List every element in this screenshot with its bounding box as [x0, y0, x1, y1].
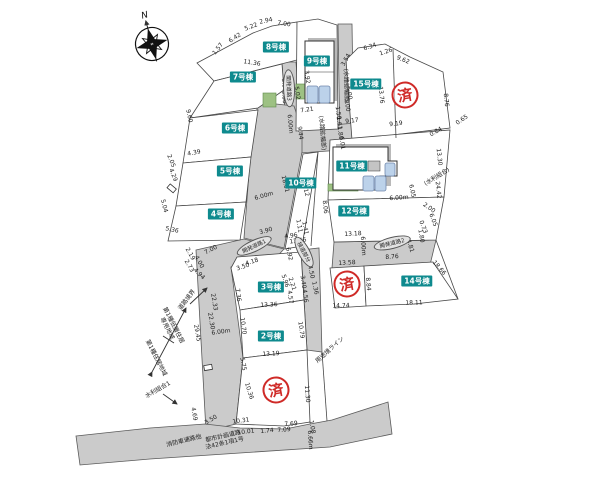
- site-plan-drawing: N: [0, 0, 600, 477]
- compass-rose: N: [127, 7, 172, 66]
- compass-north-label: N: [140, 10, 149, 21]
- site-plan: N 1.576.425.222.947.0011.363.925.027.219…: [0, 0, 600, 477]
